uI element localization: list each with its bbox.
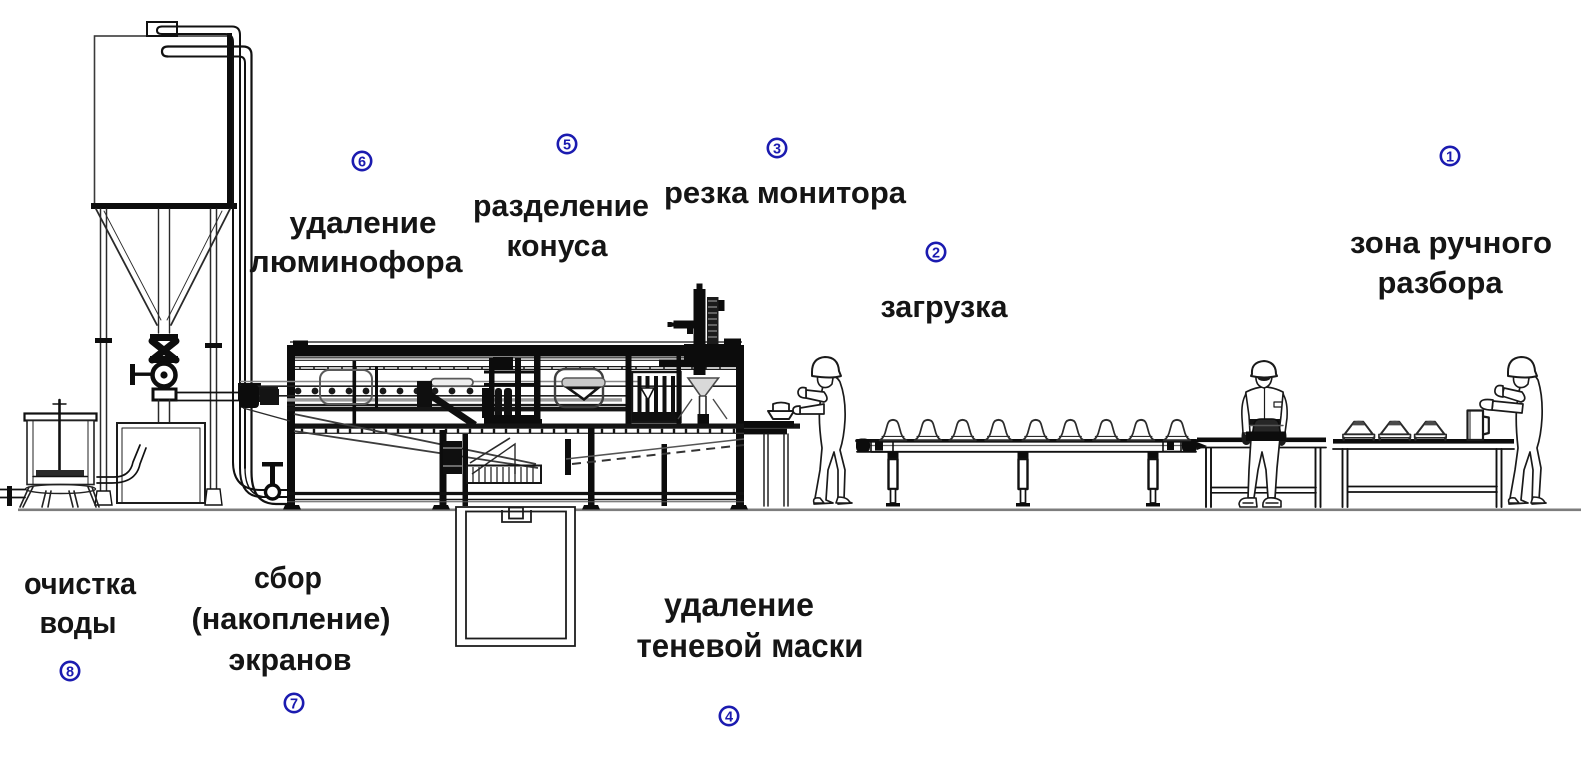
svg-text:(накопление): (накопление) bbox=[192, 601, 391, 636]
svg-text:удаление: удаление bbox=[290, 205, 437, 240]
svg-text:1: 1 bbox=[1446, 150, 1454, 166]
svg-text:удаление: удаление bbox=[664, 586, 814, 623]
svg-text:загрузка: загрузка bbox=[881, 289, 1009, 324]
svg-text:8: 8 bbox=[66, 665, 74, 681]
svg-text:резка монитора: резка монитора bbox=[664, 175, 907, 210]
svg-text:разбора: разбора bbox=[1378, 265, 1504, 300]
svg-text:теневой маски: теневой маски bbox=[637, 627, 864, 664]
svg-text:6: 6 bbox=[358, 155, 366, 171]
svg-text:очистка: очистка bbox=[24, 566, 137, 601]
svg-text:люминофора: люминофора bbox=[250, 244, 464, 279]
svg-text:разделение: разделение bbox=[473, 188, 649, 223]
svg-text:2: 2 bbox=[932, 246, 940, 262]
svg-text:экранов: экранов bbox=[229, 642, 352, 677]
svg-text:зона ручного: зона ручного bbox=[1350, 225, 1552, 260]
svg-text:7: 7 bbox=[290, 697, 298, 713]
svg-text:воды: воды bbox=[40, 605, 117, 640]
svg-text:3: 3 bbox=[773, 142, 781, 158]
svg-text:сбор: сбор bbox=[254, 560, 322, 595]
svg-text:5: 5 bbox=[563, 138, 571, 154]
svg-text:4: 4 bbox=[725, 710, 733, 726]
svg-text:конуса: конуса bbox=[507, 228, 609, 263]
